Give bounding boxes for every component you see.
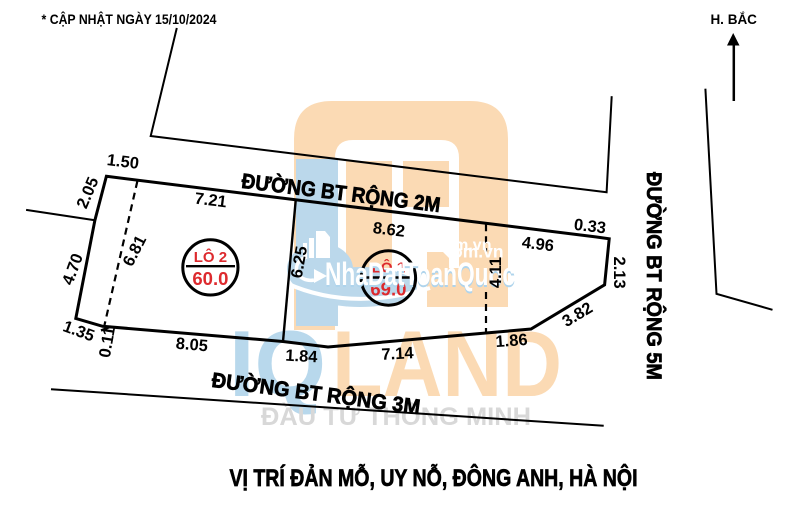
svg-text:LÔ 2: LÔ 2 bbox=[194, 248, 227, 266]
svg-text:4.11: 4.11 bbox=[487, 257, 505, 288]
svg-text:7.14: 7.14 bbox=[381, 344, 415, 364]
svg-text:* CẬP NHẬT NGÀY 15/10/2024: * CẬP NHẬT NGÀY 15/10/2024 bbox=[42, 10, 217, 27]
svg-text:1.86: 1.86 bbox=[495, 331, 528, 351]
svg-text:2.13: 2.13 bbox=[610, 257, 628, 289]
svg-text:1.84: 1.84 bbox=[285, 347, 319, 367]
svg-text:H. BẮC: H. BẮC bbox=[710, 12, 757, 27]
svg-text:VỊ TRÍ ĐẢN MỖ, UY NỖ, ĐÔNG ANH: VỊ TRÍ ĐẢN MỖ, UY NỖ, ĐÔNG ANH, HÀ NỘI bbox=[230, 463, 638, 492]
svg-text:60.0: 60.0 bbox=[192, 268, 228, 289]
svg-text:ĐƯỜNG BT RỘNG 5M: ĐƯỜNG BT RỘNG 5M bbox=[642, 172, 666, 380]
svg-text:8.05: 8.05 bbox=[175, 335, 209, 356]
